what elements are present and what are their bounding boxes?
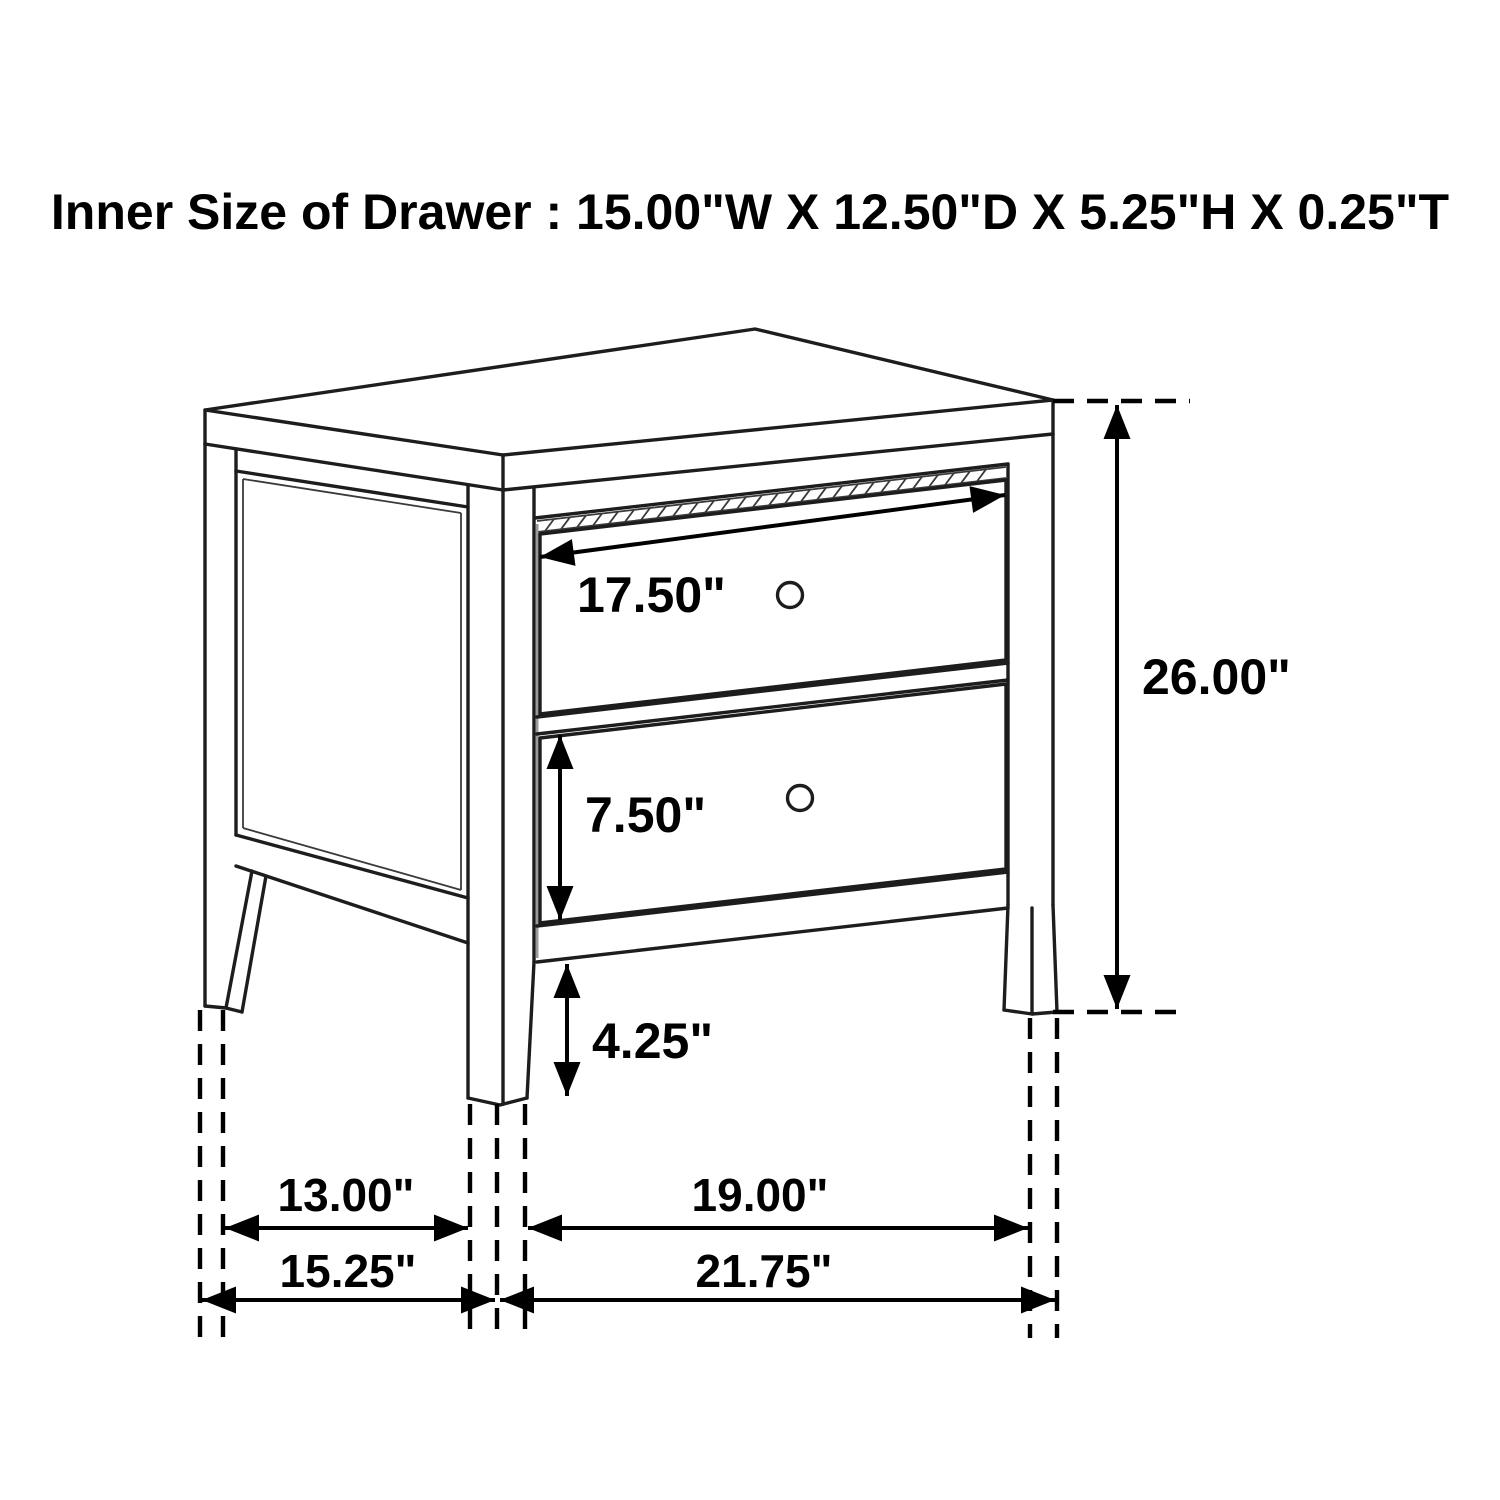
nightstand: [205, 329, 1057, 1105]
dim-overall-depth-label: 15.25": [280, 1245, 417, 1297]
dim-overall-height: 26.00": [1053, 401, 1291, 1012]
dim-leg-clearance-label: 4.25": [592, 1013, 713, 1069]
dim-overall-depth: 15.25": [202, 1245, 495, 1314]
dim-side-leg-spacing: 13.00": [225, 1169, 468, 1242]
dim-overall-width-label: 21.75": [696, 1245, 833, 1297]
dim-overall-height-label: 26.00": [1142, 649, 1291, 705]
dimension-diagram-page: Inner Size of Drawer : 15.00"W X 12.50"D…: [0, 0, 1500, 1500]
dim-side-leg-spacing-label: 13.00": [278, 1169, 415, 1221]
dim-overall-width: 21.75": [500, 1245, 1055, 1314]
dim-front-leg-spacing-label: 19.00": [692, 1169, 829, 1221]
dim-lower-drawer-height-label: 7.50": [585, 787, 706, 843]
nightstand-drawing: 17.50" 26.00" 7.50" 4.25": [0, 0, 1500, 1500]
front-left-leg: [468, 489, 534, 1105]
front-face: [535, 464, 1008, 962]
dim-front-leg-spacing: 19.00": [528, 1169, 1028, 1242]
rear-left-leg: [205, 871, 266, 1012]
dim-drawer-face-width-label: 17.50": [577, 567, 726, 623]
tabletop-surface: [205, 329, 1053, 455]
tabletop: [205, 329, 1053, 490]
side-panel: [205, 444, 503, 1104]
front-right-leg: [1004, 434, 1057, 1014]
dim-leg-clearance: 4.25": [554, 964, 714, 1096]
